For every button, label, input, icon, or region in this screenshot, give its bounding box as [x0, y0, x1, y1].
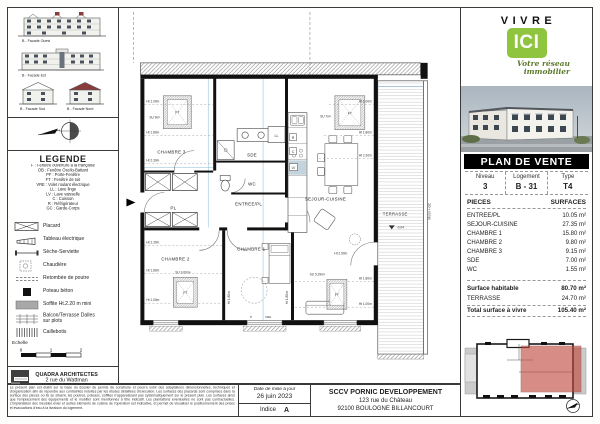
compass-section: [8, 118, 118, 151]
echelle-label: Echelle: [12, 341, 94, 346]
terrace: TERRASSE -0.04 Muret + GC: [378, 81, 432, 359]
abbrev-line: GC : Garde-Corps: [26, 207, 101, 212]
ft-label: FT: [335, 293, 339, 297]
surfaces-table: PIECES SURFACES ENTREE/PL10.05 m² SEJOUR…: [467, 199, 586, 275]
surface-habitable-row: Surface habitable 80.70 m²: [467, 284, 586, 294]
legend-item-retombee: Retombée de poutre: [8, 272, 118, 285]
room-label: SEJOUR-CUISINE: [467, 221, 518, 230]
wall: [421, 63, 428, 79]
meta-value: B - 31: [506, 182, 546, 191]
tableau-electrique-symbol-icon: [11, 234, 43, 246]
architect-name: QUADRA ARCHITECTES: [32, 371, 101, 377]
bedroom1-furniture: [241, 243, 290, 303]
placards: [145, 174, 197, 227]
dining-table: [317, 136, 357, 194]
meta-header: Niveau: [465, 174, 505, 180]
legend-label: Caillebotis: [43, 330, 99, 335]
scale-tick: 0: [20, 348, 23, 353]
facade-nord-label: B - Facade Nord: [67, 107, 93, 111]
dimension-lines: [144, 75, 263, 320]
brand-tagline: Votre réseau immobilier: [461, 60, 592, 76]
entree-label: ENTREE/PL: [235, 201, 262, 206]
vivre-ici-logo: VIVRE ICI Votre réseau immobilier: [461, 8, 592, 86]
floor-plan-drawing: TERRASSE -0.04 Muret + GC: [119, 8, 460, 383]
legend-label: Retombée de poutre: [43, 276, 99, 281]
legend-label: Poteau béton: [43, 289, 99, 294]
legend-item-poteau: Poteau béton: [8, 285, 118, 298]
table-row: ENTREE/PL10.05 m²: [467, 212, 586, 221]
svg-text:Ht 1.00m: Ht 1.00m: [359, 302, 372, 306]
scale-tick: 2: [80, 348, 83, 353]
legend-label: Soffite Ht.2.20 m mini: [43, 302, 99, 307]
svg-text:Ht 2.30m: Ht 2.30m: [146, 240, 159, 244]
sejour-label: SEJOUR-CUISINE: [305, 196, 346, 201]
ll-label: LL: [275, 134, 279, 138]
svg-text:Ht 2.30m: Ht 2.30m: [146, 159, 159, 163]
meta-type: Type T4: [547, 172, 588, 194]
developer-address1: 123 rue du Château: [311, 398, 460, 406]
muret-gc-label: Muret + GC: [428, 202, 432, 219]
ici-logo-square: ICI: [507, 28, 547, 58]
poteau-beton-symbol-icon: [11, 287, 43, 297]
retombee-poutre-symbol-icon: [11, 275, 43, 283]
chambre3-label: CHAMBRE 3: [157, 150, 185, 155]
svg-text:P: P: [250, 315, 252, 319]
footer-strip: Le présent plan est établi sur la base d…: [7, 384, 461, 417]
legend-label: Tableau électrique: [43, 237, 99, 242]
room-surface: 10.05 m²: [562, 212, 586, 221]
unit-meta-table: Niveau 3 Logement B - 31 Type T4: [465, 171, 588, 195]
terrasse-label: TERRASSE: [383, 211, 408, 216]
room-label: CHAMBRE 2: [467, 239, 502, 248]
disclaimer-block: Le présent plan est établi sur la base d…: [8, 385, 239, 416]
table-row: CHAMBRE 39.15 m²: [467, 248, 586, 257]
chambre1-label: CHAMBRE 1: [237, 246, 265, 251]
ft-label: FT: [348, 112, 352, 116]
c-label: C: [292, 150, 295, 154]
seche-serviette-symbol-icon: [11, 249, 43, 257]
room-surface: 7.00 m²: [566, 257, 586, 266]
left-sidebar: B - Facade Ouest B - Facade Est: [7, 7, 119, 384]
svg-text:Ht 1.80m: Ht 1.80m: [227, 291, 231, 304]
entry-arrow-icon: [126, 198, 135, 206]
legende-title: LEGENDE: [8, 151, 118, 164]
facades-section: B - Facade Ouest B - Facade Est: [8, 8, 118, 118]
svg-text:Ht 1.00m: Ht 1.00m: [146, 298, 159, 302]
date-value: 26 juin 2023: [239, 393, 310, 400]
vivre-wordmark: VIVRE: [461, 8, 592, 27]
svg-text:SU 5.29m²: SU 5.29m²: [310, 272, 325, 276]
meta-header: Logement: [506, 174, 546, 180]
wc-label: WC: [248, 182, 256, 187]
room-label: ENTREE/PL: [467, 212, 500, 221]
table-row: CHAMBRE 115.80 m²: [467, 230, 586, 239]
legend-item-seche-serviette: Sèche-Serviette: [8, 246, 118, 259]
soffite-symbol-icon: [11, 300, 43, 310]
svg-text:Ht 1.00m: Ht 1.00m: [359, 100, 372, 104]
north-arrow-drawing: [8, 118, 118, 145]
legend-label: Chaudière: [43, 263, 99, 268]
terrasse-row: TERRASSE 24.70 m²: [467, 294, 586, 304]
ft-label: FT: [175, 111, 179, 115]
indice-value: A: [284, 407, 289, 414]
room-surface: 15.80 m²: [562, 230, 586, 239]
sde-label: SDE: [247, 153, 257, 158]
summary-value: 80.70 m²: [561, 284, 586, 294]
summary-label: Total surface à vivre: [467, 306, 526, 316]
placard-symbol-icon: [11, 221, 43, 232]
summary-label: Surface habitable: [467, 284, 519, 294]
ft-label: FT: [183, 291, 187, 295]
meta-logement: Logement B - 31: [505, 172, 546, 194]
svg-text:SU 7m²: SU 7m²: [320, 115, 331, 119]
svg-text:Ht 1.80m: Ht 1.80m: [359, 131, 372, 135]
total-surface-row: Total surface à vivre 105.40 m²: [467, 305, 586, 317]
disclaimer-text: Le présent plan est établi sur la base d…: [8, 385, 237, 412]
legend-item-soffite: Soffite Ht.2.20 m mini: [8, 298, 118, 311]
date-label: Date de mise à jour: [246, 387, 303, 392]
right-sidebar: VIVRE ICI Votre réseau immobilier: [460, 7, 593, 417]
summary-label: TERRASSE: [467, 294, 500, 304]
meta-niveau: Niveau 3: [465, 172, 505, 194]
ici-wordmark: ICI: [514, 32, 540, 54]
svg-text:Ht 1.80m: Ht 1.80m: [146, 268, 159, 272]
legend-label: Balcon/Terrasse Dalles sur plots: [43, 313, 99, 323]
pieces-header: PIECES: [467, 199, 491, 206]
plan-de-vente-title: PLAN DE VENTE: [464, 154, 589, 169]
chaudiere-symbol-icon: [11, 260, 43, 272]
architect-address1: 2 rue du Wattman: [32, 377, 101, 383]
svg-text:Ht 2.30m: Ht 2.30m: [359, 154, 372, 158]
developer-address2: 92100 BOULOGNE BILLANCOURT: [311, 406, 460, 414]
indice-label: Indice: [260, 407, 276, 413]
room-label: SDE: [467, 257, 479, 266]
summary-value: 105.40 m²: [558, 306, 586, 316]
location-key-plan: [463, 338, 590, 414]
legend-item-caillebotis: Caillebotis: [8, 326, 118, 339]
svg-text:VRE: VRE: [265, 315, 271, 319]
legend-item-placard: Placard: [8, 220, 118, 233]
svg-text:Ht 2.50m: Ht 2.50m: [334, 251, 347, 255]
meta-value: T4: [548, 182, 588, 191]
table-row: SDE7.00 m²: [467, 257, 586, 266]
mini-north-arrow-icon: [567, 400, 580, 413]
chambre2-label: CHAMBRE 2: [161, 256, 189, 261]
developer-name: SCCV PORNIC DEVELOPPEMENT: [311, 389, 460, 396]
plan-de-vente-title-text: PLAN DE VENTE: [481, 156, 573, 168]
table-row: CHAMBRE 29.80 m²: [467, 239, 586, 248]
legende-section: LEGENDE F : Fenêtre ouverture à la franç…: [8, 151, 118, 366]
svg-text:SU 9.69m²: SU 9.69m²: [175, 270, 190, 274]
legend-item-tableau: Tableau électrique: [8, 233, 118, 246]
roof-edge-hatch: [140, 63, 420, 75]
table-row: WC1.55 m²: [467, 266, 586, 275]
legend-item-balcon: Balcon/Terrasse Dalles sur plots: [8, 311, 118, 326]
balcon-terrasse-symbol-icon: [11, 313, 43, 325]
surface-summary: Surface habitable 80.70 m² TERRASSE 24.7…: [467, 280, 586, 317]
room-surface: 1.55 m²: [566, 266, 586, 275]
facade-est-drawing: B - Facade Est: [18, 49, 104, 78]
facade-drawings: B - Facade Ouest B - Facade Est: [8, 8, 118, 112]
summary-value: 24.70 m²: [562, 294, 586, 304]
facade-nord-drawing: B - Facade Nord: [66, 83, 104, 112]
meta-value: 3: [465, 182, 505, 191]
svg-text:Ht 1.80m: Ht 1.80m: [359, 276, 372, 280]
scale-bar: 0 1 2: [12, 346, 112, 361]
caillebotis-symbol-icon: [11, 327, 43, 338]
scale-section: Echelle 0 1 2: [8, 339, 118, 366]
svg-text:Ht 1.80m: Ht 1.80m: [146, 131, 159, 135]
legend-label: Placard: [43, 224, 99, 229]
facade-ouest-label: B - Facade Ouest: [22, 39, 50, 43]
building-photo: [461, 86, 592, 152]
kitchen: R C LV: [288, 113, 307, 233]
room-label: WC: [467, 266, 477, 275]
table-row: SEJOUR-CUISINE27.35 m²: [467, 221, 586, 230]
legend-item-chaudiere: Chaudière: [8, 259, 118, 272]
room-surface: 9.15 m²: [566, 248, 586, 257]
plan-de-vente-document: B - Facade Ouest B - Facade Est: [0, 0, 600, 424]
revision-block: Date de mise à jour 26 juin 2023 Indice …: [239, 385, 311, 416]
facade-sud-label: B - Facade Sud: [20, 107, 45, 111]
facade-est-label: B - Facade Est: [22, 74, 46, 78]
room-label: CHAMBRE 1: [467, 230, 502, 239]
tagline-line2: immobilier: [461, 68, 570, 76]
scale-tick: 1: [50, 348, 53, 353]
legende-abbreviations: F : Fenêtre ouverture à la française OB …: [8, 164, 118, 220]
facade-sud-drawing: B - Facade Sud: [19, 83, 57, 112]
room-labels: CHAMBRE 3 SDE WC ENTREE/PL PL SEJOUR-CUI…: [157, 150, 346, 262]
svg-text:Ht 1.00m: Ht 1.00m: [146, 100, 159, 104]
r-label: R: [292, 136, 295, 140]
floor-plan-area: TERRASSE -0.04 Muret + GC: [118, 7, 461, 384]
meta-header: Type: [548, 174, 588, 180]
room-label: CHAMBRE 3: [467, 248, 502, 257]
room-surface: 27.35 m²: [562, 221, 586, 230]
svg-text:Ht 1.80m: Ht 1.80m: [285, 291, 289, 304]
legend-label: Sèche-Serviette: [43, 250, 99, 255]
highlighted-unit: [521, 346, 581, 392]
pl-label: PL: [170, 205, 176, 210]
svg-text:SU 9m²: SU 9m²: [149, 116, 160, 120]
surfaces-header: SURFACES: [551, 199, 586, 206]
facade-ouest-drawing: B - Facade Ouest: [18, 12, 106, 43]
room-surface: 9.80 m²: [566, 239, 586, 248]
level-value: -0.04: [397, 225, 404, 229]
developer-block: SCCV PORNIC DEVELOPPEMENT 123 rue du Châ…: [311, 385, 460, 416]
